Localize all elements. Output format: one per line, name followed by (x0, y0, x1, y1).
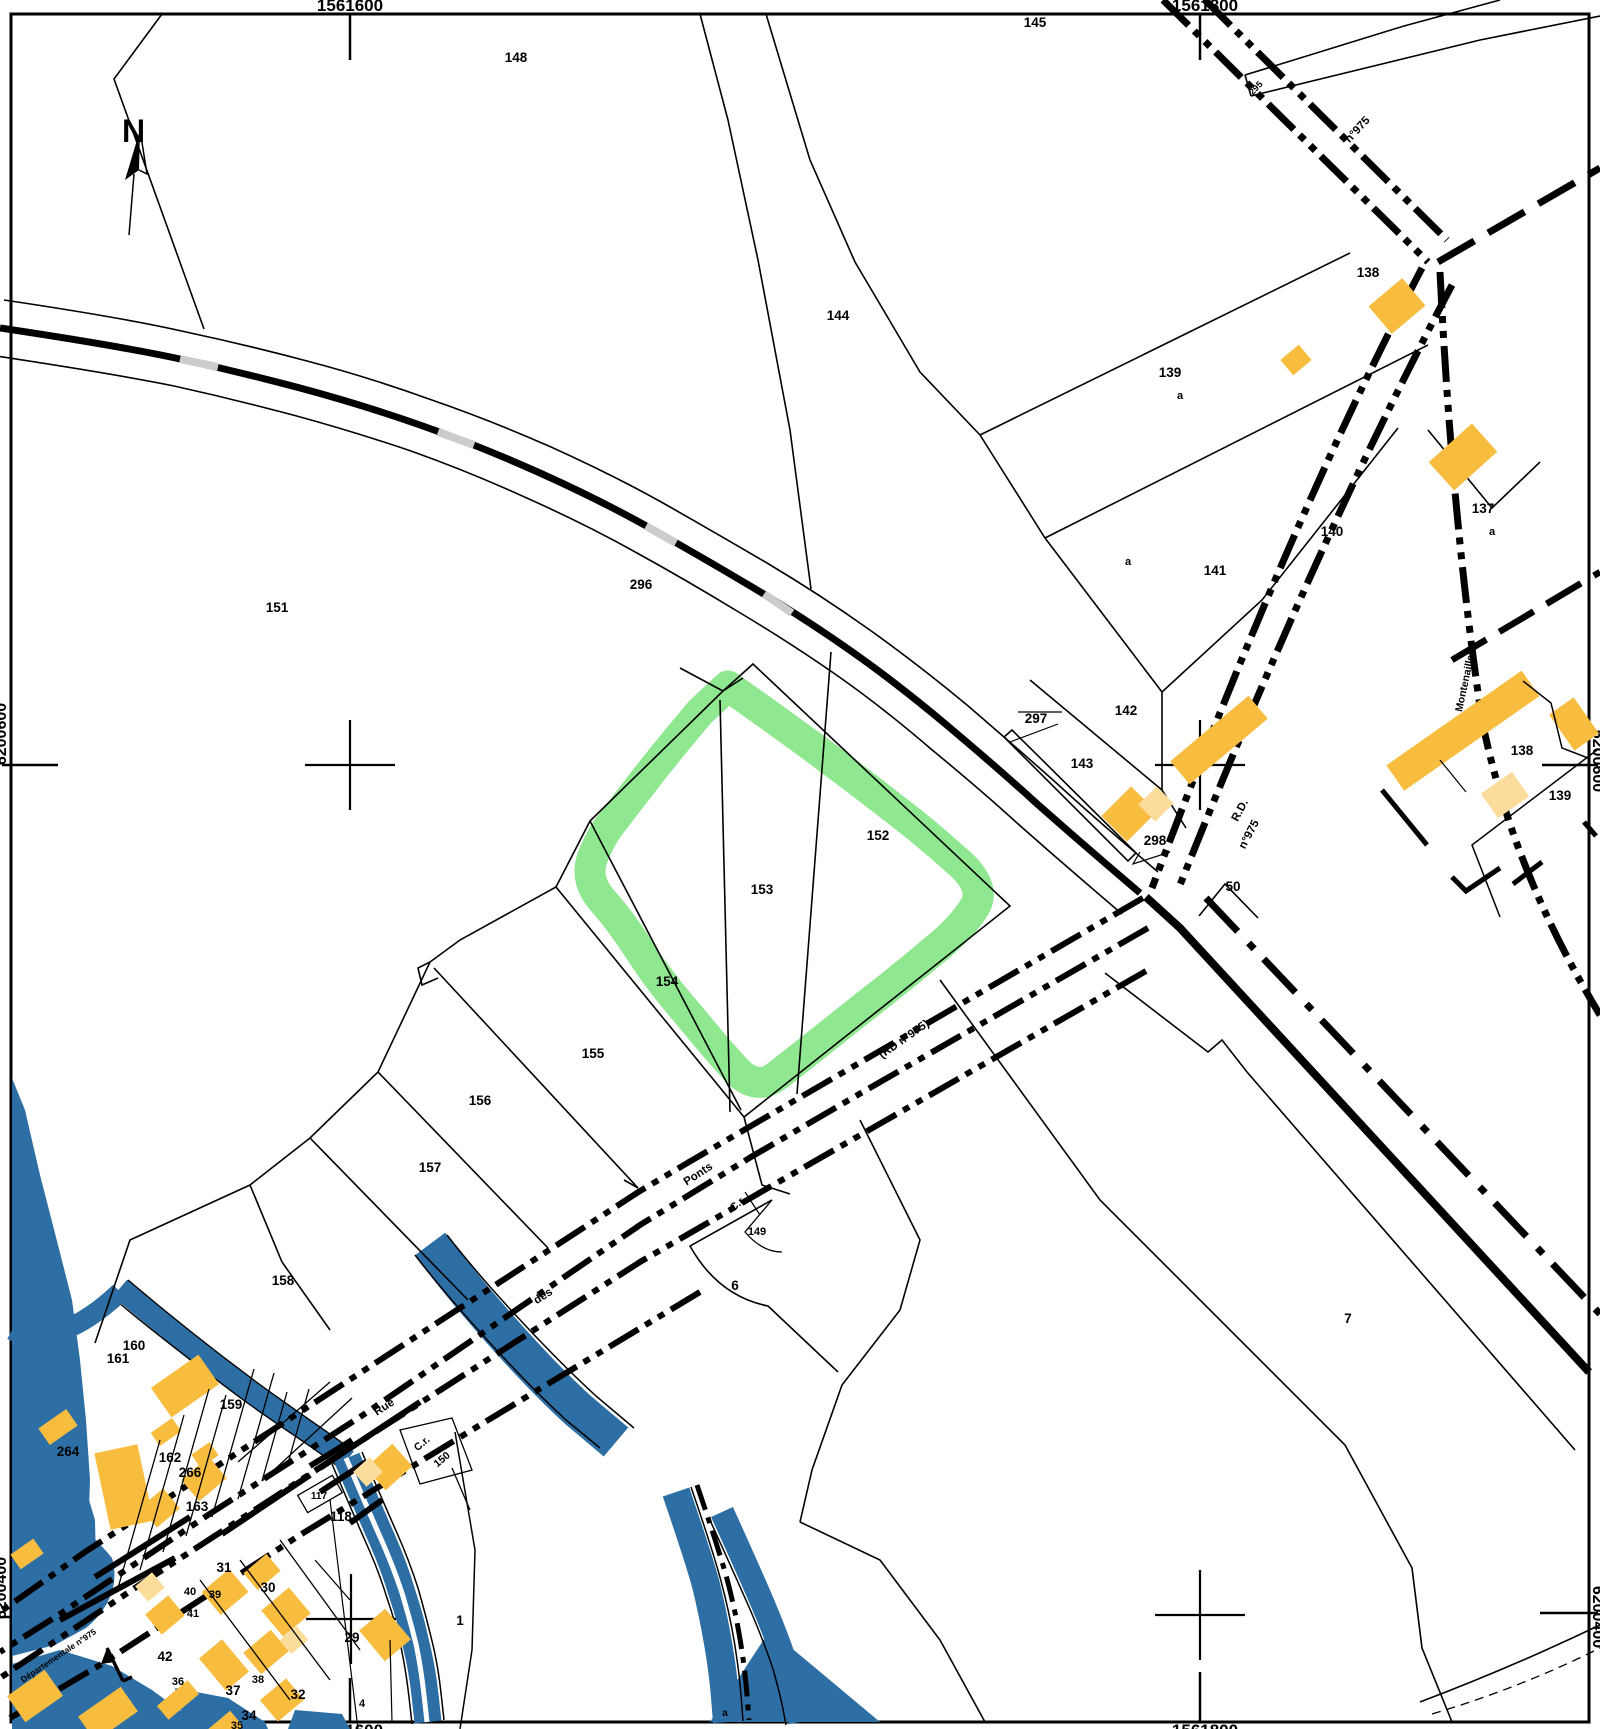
svg-text:39: 39 (209, 1589, 221, 1601)
svg-text:298: 298 (1144, 833, 1167, 848)
svg-text:38: 38 (252, 1674, 264, 1686)
svg-text:155: 155 (582, 1046, 605, 1061)
svg-text:141: 141 (1204, 563, 1227, 578)
svg-text:117: 117 (311, 1491, 328, 1502)
svg-text:1: 1 (456, 1613, 464, 1628)
svg-text:149: 149 (748, 1226, 766, 1238)
svg-text:163: 163 (186, 1499, 209, 1514)
svg-text:4: 4 (359, 1698, 366, 1710)
svg-text:30: 30 (260, 1580, 275, 1595)
svg-text:140: 140 (1321, 524, 1344, 539)
svg-text:50: 50 (1225, 879, 1240, 894)
svg-text:154: 154 (656, 974, 679, 989)
svg-text:a: a (1125, 556, 1132, 568)
svg-text:139: 139 (1549, 788, 1572, 803)
svg-text:151: 151 (266, 600, 289, 615)
svg-text:a: a (1489, 526, 1496, 538)
svg-text:41: 41 (187, 1608, 199, 1620)
svg-text:118: 118 (330, 1509, 352, 1524)
svg-text:162: 162 (159, 1450, 182, 1465)
svg-text:161: 161 (107, 1351, 130, 1366)
svg-text:6200600: 6200600 (1589, 730, 1600, 792)
svg-text:37: 37 (225, 1683, 240, 1698)
svg-text:266: 266 (179, 1465, 202, 1480)
svg-text:138: 138 (1357, 265, 1380, 280)
svg-text:7: 7 (1344, 1311, 1352, 1326)
svg-text:6200600: 6200600 (0, 703, 10, 765)
svg-text:42: 42 (157, 1649, 172, 1664)
svg-text:a: a (722, 1708, 728, 1719)
svg-text:144: 144 (827, 308, 850, 323)
svg-text:6: 6 (731, 1278, 739, 1293)
svg-text:152: 152 (867, 828, 890, 843)
svg-text:143: 143 (1071, 756, 1094, 771)
svg-text:153: 153 (751, 882, 774, 897)
svg-text:145: 145 (1024, 15, 1047, 30)
svg-text:159: 159 (220, 1397, 243, 1412)
svg-text:157: 157 (419, 1160, 442, 1175)
svg-text:31: 31 (216, 1560, 232, 1575)
svg-text:138: 138 (1511, 743, 1534, 758)
svg-text:142: 142 (1115, 703, 1138, 718)
svg-text:32: 32 (290, 1687, 305, 1702)
svg-text:297: 297 (1025, 711, 1048, 726)
svg-text:139: 139 (1159, 365, 1182, 380)
svg-text:6200400: 6200400 (1589, 1586, 1600, 1648)
svg-text:156: 156 (469, 1093, 492, 1108)
svg-text:40: 40 (184, 1586, 196, 1598)
svg-text:36: 36 (172, 1676, 184, 1688)
svg-text:1561600: 1561600 (317, 0, 383, 15)
svg-text:1561800: 1561800 (1172, 1721, 1238, 1729)
svg-text:35: 35 (231, 1720, 243, 1729)
svg-text:158: 158 (272, 1273, 295, 1288)
svg-text:137: 137 (1472, 501, 1495, 516)
svg-text:148: 148 (505, 50, 528, 65)
svg-text:29: 29 (344, 1630, 359, 1645)
svg-text:34: 34 (241, 1708, 257, 1723)
svg-text:a: a (1177, 390, 1184, 402)
svg-text:264: 264 (57, 1444, 80, 1459)
svg-text:296: 296 (630, 577, 653, 592)
